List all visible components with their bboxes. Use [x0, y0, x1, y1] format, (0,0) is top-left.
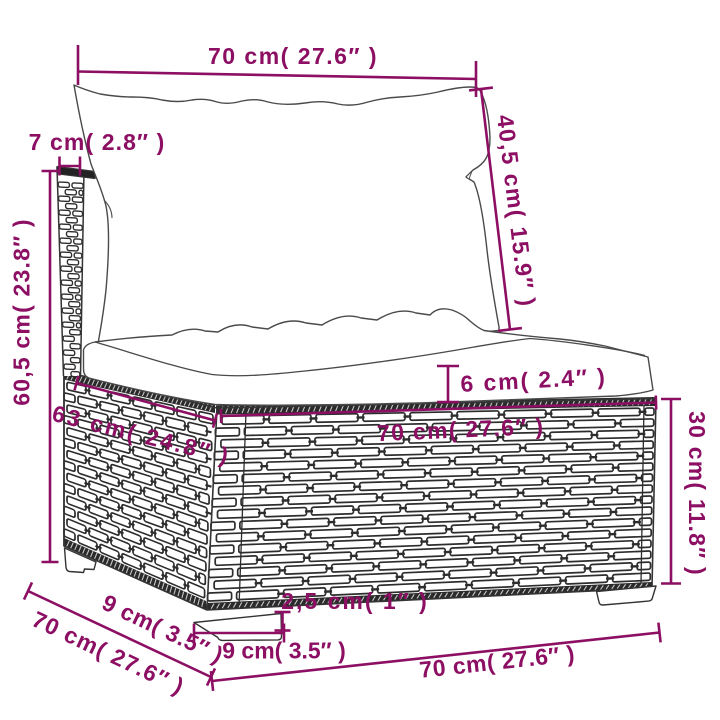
svg-text:7 cm( 2.8″ ): 7 cm( 2.8″ ) [29, 129, 166, 155]
svg-text:2,5 cm( 1″ ): 2,5 cm( 1″ ) [281, 588, 429, 614]
svg-text:70 cm( 27.6″ ): 70 cm( 27.6″ ) [208, 43, 378, 69]
svg-text:60,5 cm( 23.8″ ): 60,5 cm( 23.8″ ) [9, 218, 35, 405]
svg-text:30 cm( 11.8″ ): 30 cm( 11.8″ ) [684, 411, 710, 576]
svg-text:9 cm( 3.5″ ): 9 cm( 3.5″ ) [222, 638, 346, 664]
